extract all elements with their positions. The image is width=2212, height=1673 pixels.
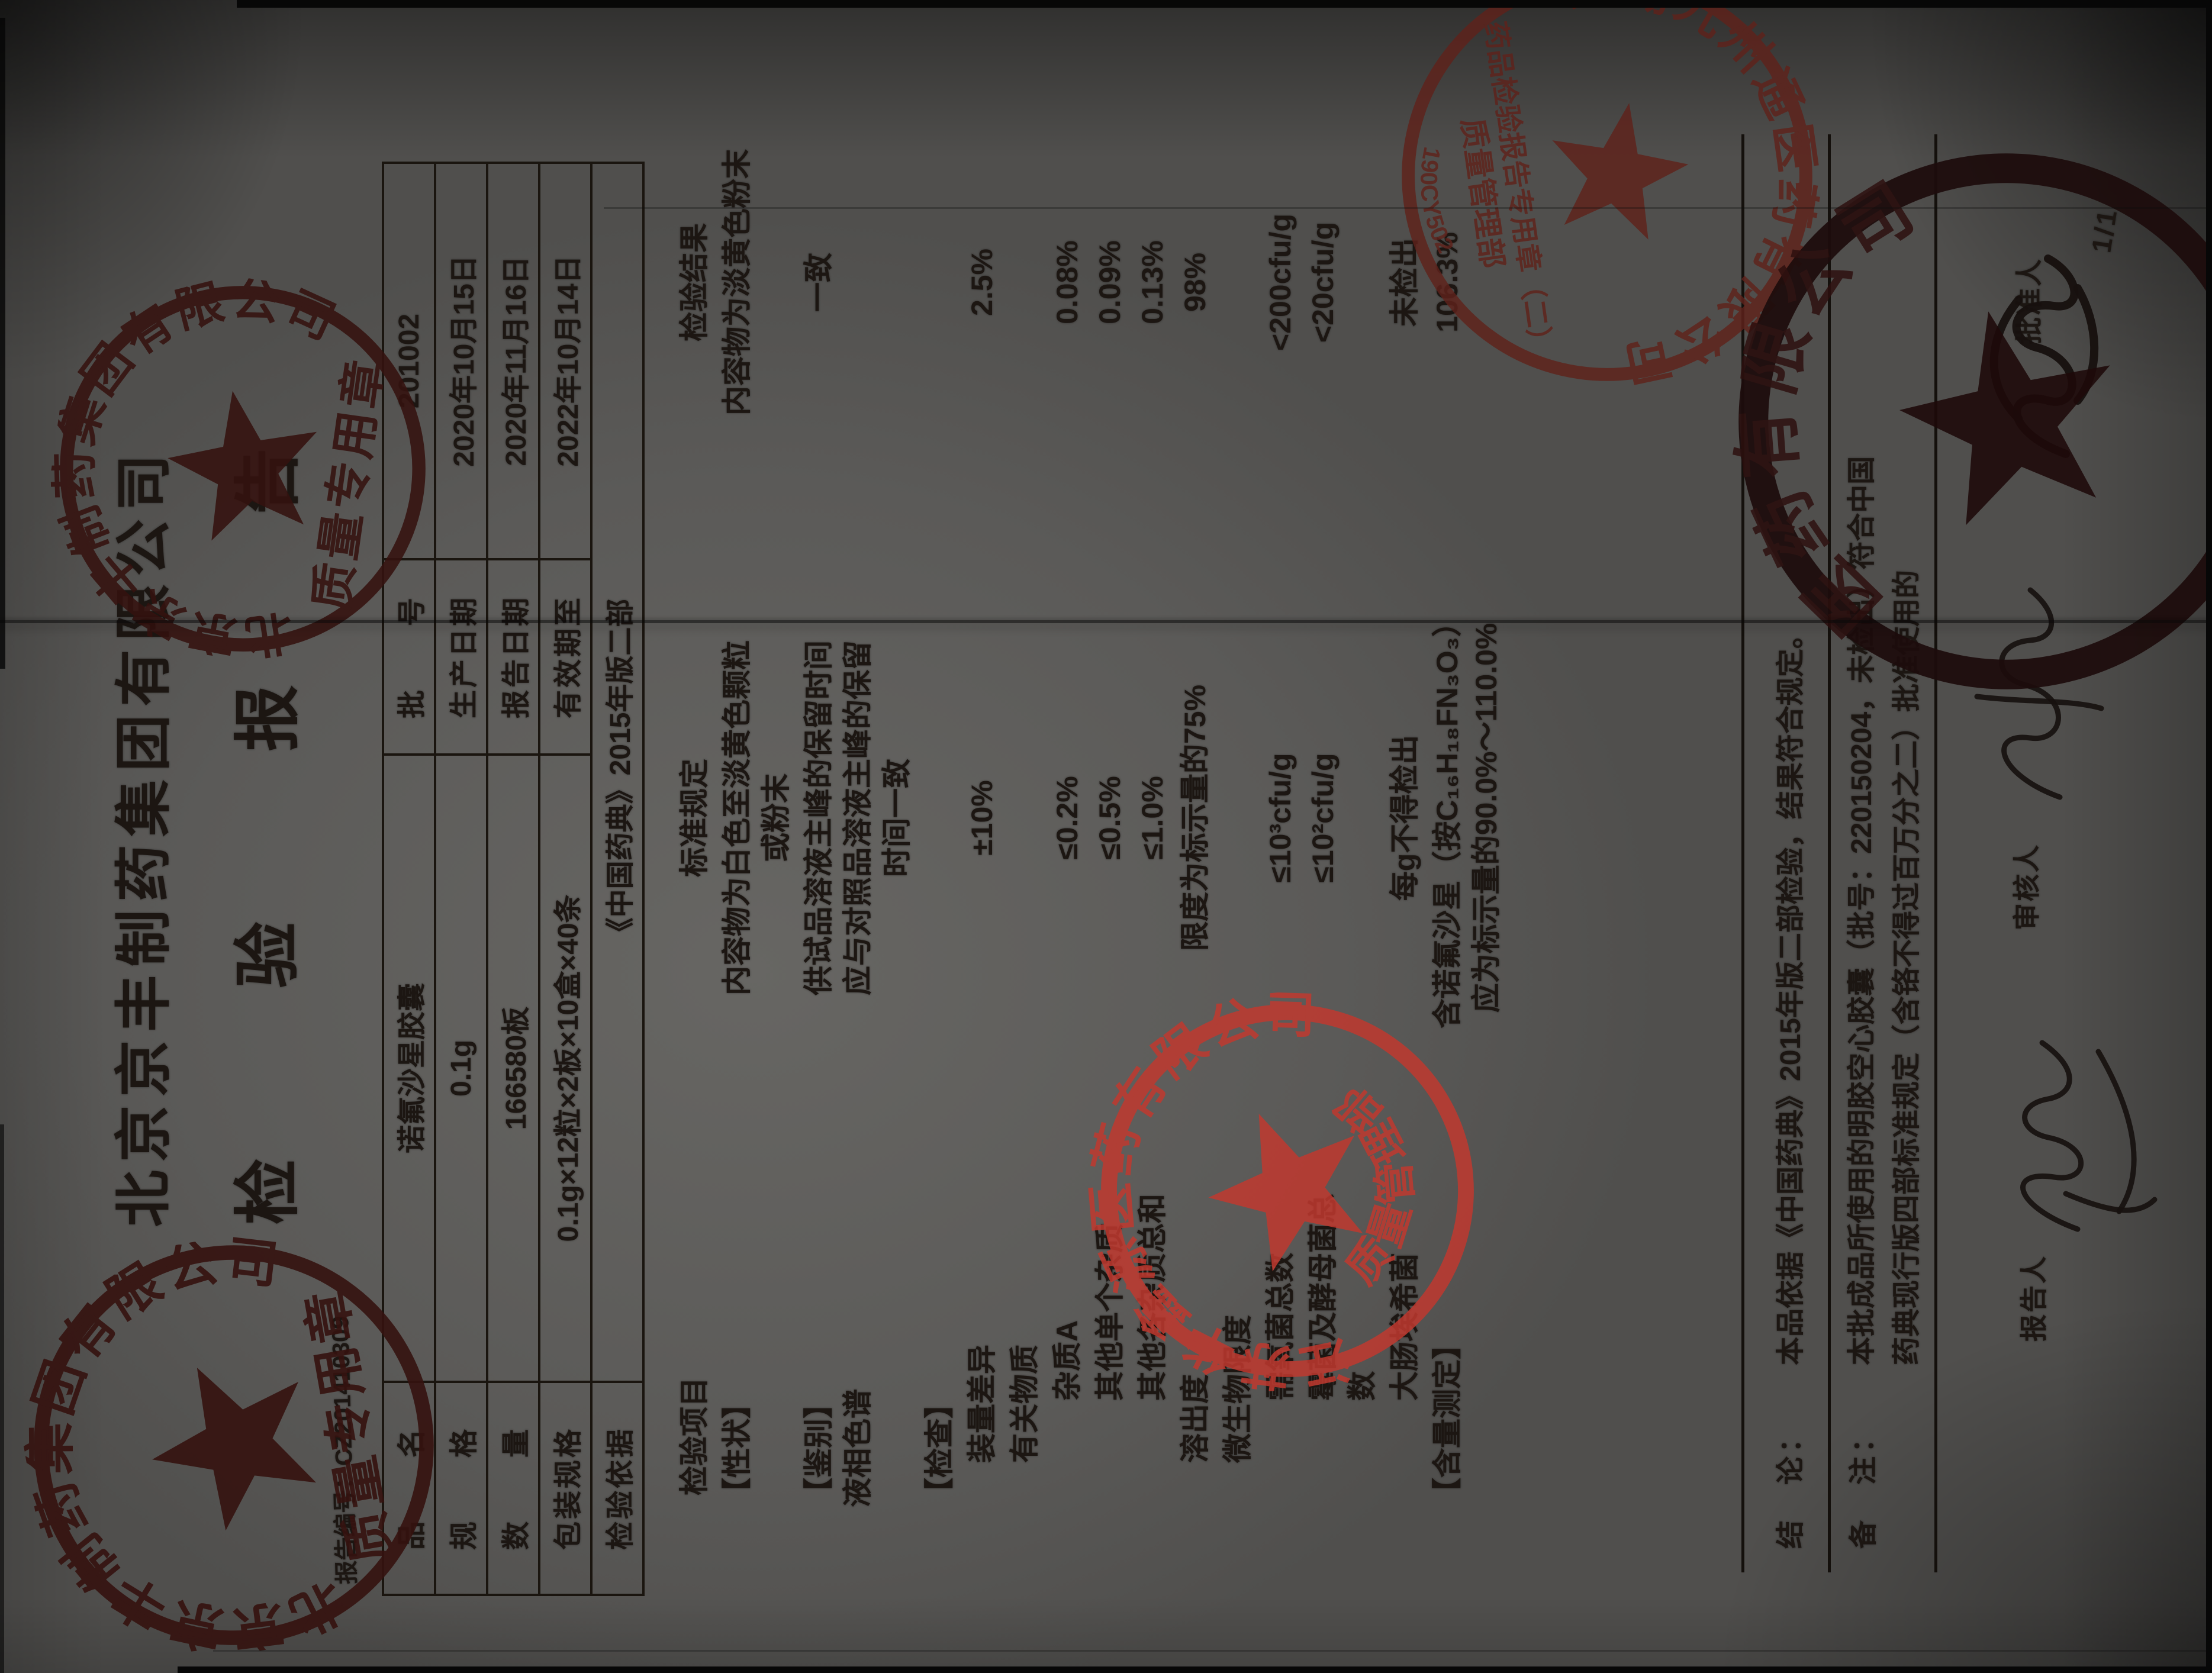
scanner-edge bbox=[178, 1666, 2212, 1673]
result-value: 0.13% bbox=[1133, 117, 1172, 448]
info-label-basis: 检验依据 bbox=[591, 1382, 643, 1595]
table-row: 检验依据 《中国药典》2015年版二部 bbox=[591, 163, 643, 1595]
conclusion-text: 本品依据《中国药典》2015年版二部检验，结果符合规定。 bbox=[1767, 620, 1808, 1365]
item-label: 【性状】 bbox=[717, 1188, 756, 1507]
col-header-item: 检验项目 bbox=[675, 1188, 714, 1596]
table-row: 【性状】 内容物为白色至淡黄色颗粒或粉末 内容物为淡黄色粉末 bbox=[717, 117, 796, 1596]
dark-company-seal-over-conclusion: 医药有限公司 bbox=[1711, 125, 2212, 717]
star-icon bbox=[1888, 303, 2114, 538]
info-label-report-date: 报告日期 bbox=[487, 559, 539, 755]
fold-crease bbox=[604, 207, 2212, 209]
svg-text:质量管理部: 质量管理部 bbox=[1321, 1070, 1429, 1297]
info-value-report-date: 2020年11月16日 bbox=[487, 163, 539, 559]
items-header-row: 检验项目 标准规定 检验结果 bbox=[675, 117, 714, 1596]
stamp-dept-text: 质量管理部 bbox=[1321, 1070, 1429, 1297]
star-icon bbox=[157, 383, 320, 553]
info-value-basis: 《中国药典》2015年版二部 bbox=[591, 163, 643, 1382]
conclusion-label: 结 论： bbox=[1767, 1365, 1808, 1549]
scanner-edge bbox=[0, 18, 5, 669]
star-icon bbox=[1202, 1105, 1366, 1276]
reviewer-label: 审核人 bbox=[2005, 843, 2044, 930]
jiangsu-huaxinyuan-quality-dept-seal: 江苏华鑫源医药有限公司 质量管理部 bbox=[1073, 976, 1502, 1406]
col-header-standard: 标准规定 bbox=[675, 448, 714, 1188]
scanner-edge bbox=[2206, 0, 2212, 1673]
info-value-qty: 166580板 bbox=[487, 755, 539, 1382]
table-row: 包装规格 0.1g×12粒×2板×10盒×40条 有效期至 2022年10月14… bbox=[539, 163, 591, 1595]
table-row: 【检查】 bbox=[920, 117, 959, 1596]
info-label-expiry: 有效期至 bbox=[539, 559, 591, 755]
table-row: 杂质A ≤0.2% 0.08% bbox=[1048, 117, 1087, 1596]
item-label: 装量差异 bbox=[962, 1188, 1002, 1463]
info-label-mfg-date: 生产日期 bbox=[435, 559, 487, 755]
result-value: 0.08% bbox=[1048, 117, 1087, 448]
reporter-label: 报告人 bbox=[2013, 1255, 2052, 1342]
fold-crease bbox=[0, 620, 2212, 623]
star-icon bbox=[138, 1351, 321, 1541]
report-page: 北京京丰制药集团有限公司 检 验 报 告 报告编号：CZ201410309 品 … bbox=[0, 0, 2212, 1673]
info-value-pack: 0.1g×12粒×2板×10盒×40条 bbox=[539, 755, 591, 1382]
info-value-expiry: 2022年10月14日 bbox=[539, 163, 591, 559]
result-value: 一致 bbox=[799, 117, 838, 448]
info-label-qty: 数 量 bbox=[487, 1382, 539, 1595]
table-row: 数 量 166580板 报告日期 2020年11月16日 bbox=[487, 163, 539, 1595]
star-icon bbox=[1548, 96, 1698, 251]
result-value: 2.5% bbox=[962, 117, 1002, 448]
remark-label: 备 注： bbox=[1840, 1365, 1930, 1549]
reporter-signature bbox=[1971, 992, 2166, 1247]
scanned-inspection-report: 北京京丰制药集团有限公司 检 验 报 告 报告编号：CZ201410309 品 … bbox=[0, 0, 2212, 1673]
result-value: <200cfu/g bbox=[1261, 117, 1300, 448]
result-value: 内容物为淡黄色粉末 bbox=[717, 117, 756, 448]
result-value: <20cfu/g bbox=[1303, 117, 1342, 448]
result-value: 0.09% bbox=[1090, 117, 1129, 448]
info-label-pack: 包装规格 bbox=[539, 1382, 591, 1595]
item-label: 有关物质 bbox=[1005, 1188, 1044, 1463]
item-label: 【检查】 bbox=[920, 1188, 959, 1507]
result-value: 98% bbox=[1176, 117, 1215, 448]
beijing-jingfeng-quality-seal-top-left: 北京京丰制药集团有限公司 质量专用章 bbox=[0, 1205, 474, 1673]
scanner-edge bbox=[0, 1124, 4, 1673]
fold-crease bbox=[213, 1650, 2212, 1652]
table-row: 装量差异 ±10% 2.5% bbox=[962, 117, 1002, 1596]
item-label: 杂质A bbox=[1048, 1188, 1087, 1401]
scanner-edge bbox=[237, 0, 2212, 8]
info-value-spec: 0.1g bbox=[435, 755, 487, 1382]
table-row: 有关物质 bbox=[1005, 117, 1044, 1596]
col-header-result: 检验结果 bbox=[675, 117, 714, 448]
table-row: 【鉴别】液相色谱 供试品溶液主峰的保留时间应与对照品溶液主峰的保留时间一致 一致 bbox=[799, 117, 916, 1596]
item-label: 【鉴别】 bbox=[799, 1188, 838, 1507]
beijing-jingfeng-quality-seal-top-right: 北京京丰制药集团有限公司 质量专用章 bbox=[29, 255, 457, 683]
